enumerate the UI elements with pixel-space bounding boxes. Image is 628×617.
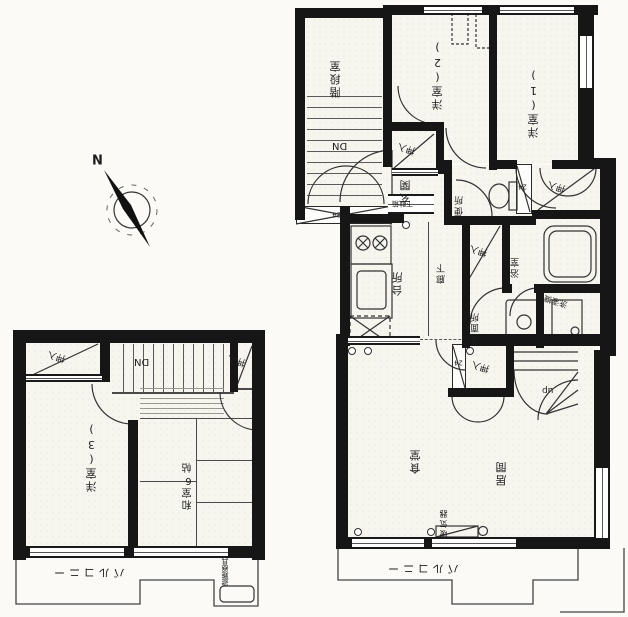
- closet-diagonal: [236, 346, 252, 388]
- toilet-tank: [509, 182, 517, 210]
- wall: [506, 346, 514, 392]
- wall: [502, 222, 510, 288]
- wall: [534, 284, 602, 293]
- wall: [444, 216, 536, 225]
- room-label-hallway: 廊下: [438, 240, 447, 284]
- stairs-down-label: DN: [332, 140, 347, 151]
- toilet-bowl: [489, 184, 509, 208]
- wall: [444, 160, 452, 224]
- wall: [448, 388, 514, 397]
- wall: [128, 420, 138, 546]
- closet-door-arcs: [452, 396, 504, 422]
- room-label-western-room-1: 洋室(1): [528, 66, 539, 138]
- room-label-entrance: 玄関: [400, 158, 411, 204]
- wall: [464, 334, 616, 346]
- window: [578, 36, 594, 88]
- wall: [462, 222, 470, 288]
- room-label-kitchen: 台所: [392, 250, 403, 296]
- heater-valve: [479, 527, 488, 536]
- balcony-label-1f: バルコニー: [384, 562, 459, 574]
- window: [500, 5, 574, 15]
- wall: [502, 284, 512, 293]
- storage-box: [452, 14, 468, 44]
- heater-label: 暖気器: [440, 486, 448, 538]
- compass: [104, 170, 157, 247]
- burner-cross: [358, 238, 385, 248]
- wall: [383, 5, 392, 167]
- sliding-door-track: [26, 374, 102, 382]
- wall: [348, 214, 404, 223]
- door-arc: [346, 166, 384, 204]
- wall: [336, 334, 348, 548]
- duct-label: 24: [454, 358, 463, 366]
- duct-label: 24: [518, 182, 527, 190]
- room-label-living: 居間: [496, 438, 507, 486]
- sliding-door-track: [392, 168, 438, 176]
- stair-treads: [514, 352, 578, 370]
- window: [352, 537, 424, 549]
- room-label-western-room-3: 洋室(3): [86, 416, 97, 492]
- window: [134, 546, 228, 558]
- room-label-dining: 食堂: [410, 426, 421, 474]
- bathtub: [544, 226, 596, 282]
- compass-needle: [104, 170, 150, 247]
- evacuation-label: 避難器具: [222, 552, 229, 586]
- shoe-cabinet-label: 下駄箱: [392, 199, 413, 207]
- wall: [552, 160, 600, 169]
- wall: [532, 210, 600, 219]
- stairs-up-label: up: [542, 384, 553, 394]
- evacuation-hatch: [220, 586, 254, 602]
- wall: [295, 8, 305, 220]
- window: [594, 468, 610, 538]
- stairs-down-label: DN: [134, 356, 149, 367]
- duct-hatch: [453, 346, 465, 388]
- wall: [340, 206, 350, 340]
- room-label-bath: 浴室: [512, 234, 521, 278]
- compass-north-label: N: [92, 150, 103, 164]
- room-label-toilet: 便所: [456, 172, 465, 216]
- washbasin-drain: [517, 315, 531, 329]
- wall: [252, 330, 265, 560]
- duct-label: 24: [332, 210, 341, 218]
- room-label-stair-hall: 階段室: [330, 28, 341, 98]
- room-label-japanese-room: 和室6帖: [184, 426, 194, 510]
- wall: [489, 5, 497, 127]
- room-label-western-room-2: 洋室(2): [432, 38, 443, 110]
- balcony-label-2f: バルコニー: [50, 566, 125, 578]
- wall: [600, 158, 616, 356]
- room-label-washroom: 洗面所: [472, 292, 481, 344]
- window: [432, 537, 516, 549]
- window: [348, 336, 420, 345]
- window: [30, 546, 124, 558]
- wall: [13, 330, 26, 560]
- door-arc: [446, 128, 486, 168]
- bathtub-inner: [549, 231, 591, 277]
- door-arc: [92, 384, 132, 424]
- window: [424, 5, 482, 15]
- sink: [357, 271, 386, 309]
- wall: [295, 8, 392, 18]
- wall: [489, 160, 517, 169]
- wall: [13, 330, 265, 343]
- floor-plan-scan: 階段室 DN 洋室(2) 洋室(1) 押入 玄関 下駄箱 便所 押入 台所 廊下…: [0, 0, 628, 617]
- stove-counter: [351, 226, 391, 264]
- balcony-outline-1f: [338, 548, 578, 604]
